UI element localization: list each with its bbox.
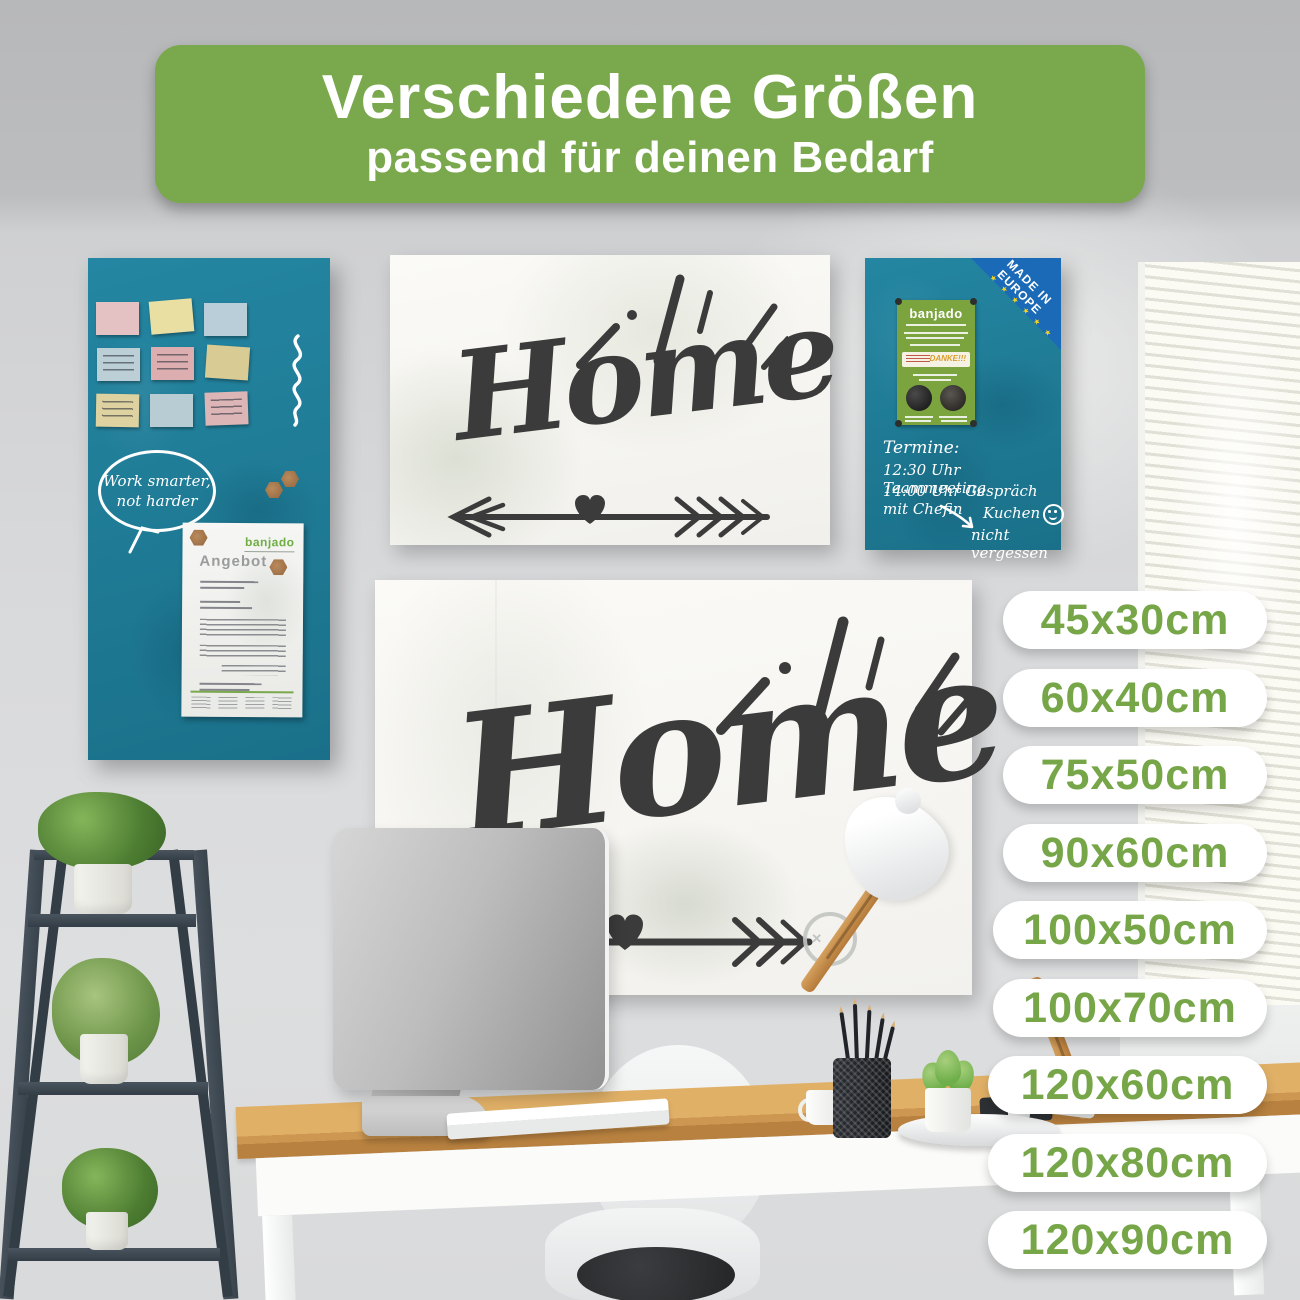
banner-title: Verschiedene Größen	[322, 65, 978, 130]
sticky-note	[151, 347, 194, 380]
document-totals	[222, 665, 286, 675]
sticky-note	[204, 391, 248, 425]
squiggle-icon	[284, 332, 310, 428]
label-text-line	[906, 337, 964, 339]
cork-magnet-icon	[281, 471, 299, 487]
label-heading-line	[919, 379, 951, 381]
lamp-hinge	[895, 788, 921, 814]
label-address-line	[939, 416, 967, 418]
sticky-note	[149, 298, 195, 335]
size-pill: 90x60cm	[1003, 824, 1267, 882]
window-sunlight	[1170, 300, 1300, 720]
headline-banner: Verschiedene Größen passend für deinen B…	[155, 45, 1145, 203]
rays-icon	[693, 602, 973, 757]
dog-photo	[906, 385, 932, 411]
label-text-line	[904, 332, 968, 334]
document-table	[200, 645, 286, 660]
document-footer-column	[191, 697, 210, 709]
offer-document: Angebot banjado	[181, 523, 303, 718]
glass-memo-board-teal-small: MADE IN EUROPE ★ ★ ★ ★ ★ ★ banjado DANKE…	[865, 258, 1061, 550]
sticky-note	[96, 394, 140, 428]
imac-computer	[333, 828, 609, 1090]
handwriting-vergessen: nicht vergessen	[971, 526, 1061, 562]
size-pill: 45x30cm	[1003, 591, 1267, 649]
document-footer-column	[218, 697, 237, 709]
danke-box: DANKE!!!	[902, 352, 970, 367]
label-text-line	[906, 324, 966, 326]
succulent-pot	[925, 1088, 971, 1132]
speech-bubble: Work smarter, not harder	[98, 450, 216, 532]
made-in-europe-badge: MADE IN EUROPE ★ ★ ★ ★ ★ ★	[971, 258, 1061, 350]
shelf-board	[28, 914, 196, 927]
document-paragraph	[200, 619, 286, 638]
sticky-note	[204, 303, 247, 336]
plant-pot	[74, 864, 132, 914]
cork-magnet-icon	[269, 559, 287, 575]
danke-small-lines	[906, 355, 930, 364]
rays-icon	[558, 263, 788, 388]
danke-text: DANKE!!!	[930, 354, 966, 363]
handwriting-kuchen: Kuchen	[983, 504, 1040, 522]
document-text-line	[200, 601, 240, 603]
label-brand: banjado	[897, 306, 975, 321]
size-pill: 120x60cm	[988, 1056, 1267, 1114]
sticky-note	[97, 348, 140, 381]
sticky-note	[205, 345, 250, 381]
speech-bubble-tail	[126, 524, 162, 556]
pen-cup	[833, 1058, 891, 1138]
label-address-line	[905, 416, 933, 418]
dog-photo	[940, 385, 966, 411]
potted-plant-pothos	[38, 792, 166, 870]
document-footer-rule	[190, 691, 293, 694]
document-text-line	[200, 581, 258, 583]
label-text-line	[910, 344, 960, 346]
handwriting-termine: Termine:	[883, 438, 960, 458]
magnet-dot	[970, 420, 977, 427]
document-text-line	[200, 587, 244, 589]
document-text-line	[200, 683, 262, 685]
glass-memo-board-teal-large: Work smarter, not harder Angebot banjado	[88, 258, 330, 760]
size-pill: 75x50cm	[1003, 746, 1267, 804]
document-footer-column	[272, 697, 291, 709]
label-heading-line	[913, 374, 957, 376]
size-pill: 60x40cm	[1003, 669, 1267, 727]
cork-magnet-icon	[190, 530, 208, 546]
label-address-line	[905, 420, 931, 422]
banner-subtitle: passend für deinen Bedarf	[366, 133, 934, 183]
document-footer-column	[245, 697, 264, 709]
speech-bubble-line2: not harder	[117, 491, 198, 511]
speech-bubble-line1: Work smarter,	[103, 471, 211, 491]
document-text-line	[200, 607, 252, 609]
magnet-dot	[895, 420, 902, 427]
document-title: Angebot	[199, 553, 267, 570]
plant-pot	[86, 1212, 128, 1250]
banjado-logo: banjado	[245, 535, 295, 549]
size-pill: 100x50cm	[993, 901, 1267, 959]
arrow-heart-icon	[445, 487, 785, 539]
smiley-icon	[1043, 504, 1064, 525]
size-pill: 120x90cm	[988, 1211, 1267, 1269]
plant-pot	[80, 1034, 128, 1084]
product-size-infographic: Work smarter, not harder Angebot banjado	[0, 0, 1300, 1300]
sticky-note	[96, 302, 139, 335]
label-address-line	[941, 420, 967, 422]
cork-magnet-icon	[265, 482, 283, 498]
size-pill: 120x80cm	[988, 1134, 1267, 1192]
magnet-dot	[895, 298, 902, 305]
glass-board-home-small: Home	[390, 255, 830, 545]
desk-leg	[262, 1215, 297, 1300]
ladder-shelf	[0, 850, 240, 1300]
banjado-product-label: banjado DANKE!!!	[897, 300, 975, 425]
sticky-note	[150, 394, 193, 427]
size-pill: 100x70cm	[993, 979, 1267, 1037]
magnet-dot	[970, 298, 977, 305]
